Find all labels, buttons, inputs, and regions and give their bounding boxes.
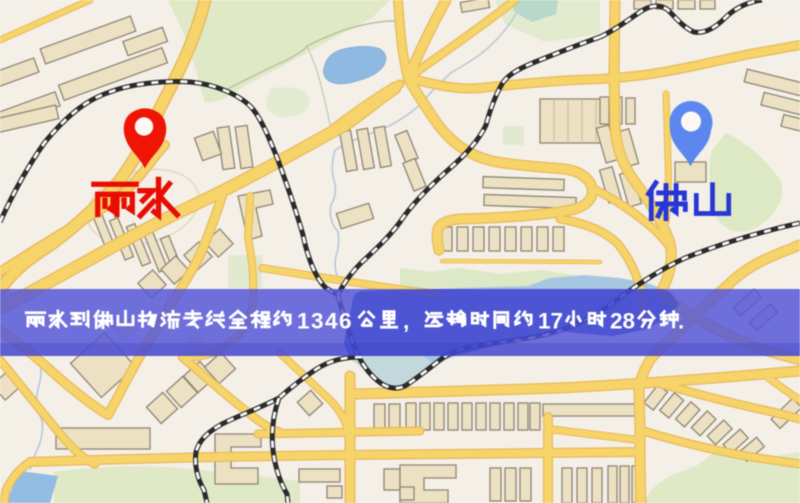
svg-text:,: , (403, 309, 409, 334)
svg-text:.: . (678, 309, 684, 334)
svg-text:17: 17 (538, 309, 563, 334)
svg-text:1346: 1346 (297, 309, 353, 334)
svg-text:28: 28 (610, 309, 635, 334)
